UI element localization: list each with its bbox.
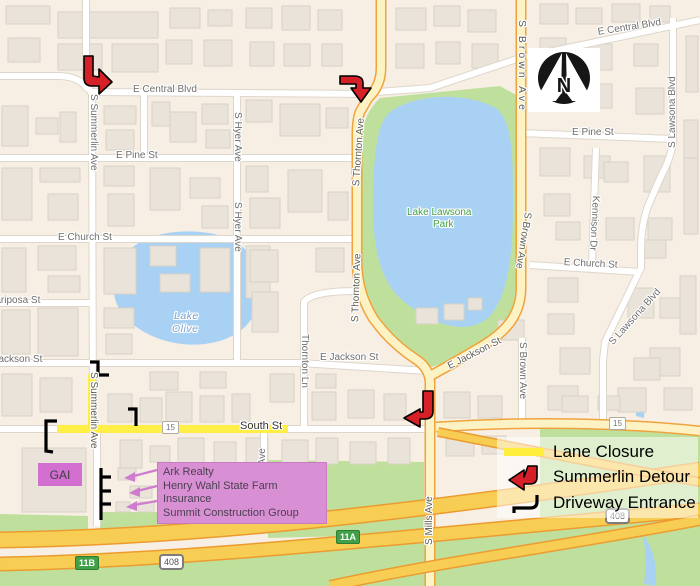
building (152, 102, 170, 126)
building (170, 8, 200, 28)
route-shield-15-west: 15 (162, 421, 179, 434)
compass-n-letter: N (557, 75, 571, 97)
building (348, 390, 374, 418)
building (38, 308, 78, 356)
building (106, 334, 132, 354)
building (478, 396, 502, 418)
street-label-s-lawsona-blvd-n: S Lawsona Blvd (667, 76, 679, 148)
building (396, 44, 424, 68)
building (250, 42, 274, 66)
detour-map-canvas: E Central Blvd E Central Blvd E Pine St … (0, 0, 700, 586)
building (316, 248, 344, 272)
callout-line-summit-construction: Summit Construction Group (163, 507, 321, 521)
legend-label-lane-closure: Lane Closure (553, 442, 654, 462)
building (60, 112, 76, 142)
building (38, 246, 76, 270)
building (200, 248, 230, 292)
building (40, 168, 80, 182)
building (166, 392, 192, 422)
building (318, 10, 342, 30)
building (200, 372, 226, 388)
exit-shield-11a: 11A (336, 530, 360, 544)
building (200, 396, 224, 422)
building (104, 106, 136, 124)
building (246, 8, 272, 28)
building (150, 446, 170, 462)
building (2, 106, 28, 146)
street-label-e-jackson-st-mid: E Jackson St (320, 352, 378, 364)
building (270, 374, 294, 402)
building (634, 358, 660, 380)
building (206, 130, 230, 148)
lake-olive-label-line1: Lake (174, 310, 199, 322)
map-legend: Lane Closure Summerlin Detour Driveway E… (497, 437, 698, 518)
building (48, 276, 80, 292)
street-label-s-brown-ave-s: S Brown Ave (516, 342, 528, 399)
building (436, 42, 460, 64)
detour-arrow-icon (502, 464, 546, 491)
lane-closure-swatch-icon (502, 446, 546, 458)
building (282, 6, 310, 30)
lake-lawsona-park-label-line1: Lake Lawsona (407, 207, 472, 219)
building (104, 248, 136, 294)
building (556, 222, 580, 240)
legend-label-summerlin-detour: Summerlin Detour (553, 467, 690, 487)
building (40, 378, 72, 412)
building (232, 394, 250, 422)
building (170, 112, 196, 142)
building (252, 292, 278, 332)
street-label-s-mills-ave: S Mills Ave (424, 496, 436, 545)
street-label-s-brown-ave-n: S Brown Ave (516, 20, 528, 113)
building (416, 308, 438, 324)
building (434, 6, 460, 26)
street-label-s-thornton-ave-mid: S Thornton Ave (350, 253, 364, 322)
lake-olive-label-line2: Olive (172, 323, 198, 335)
building (2, 374, 32, 416)
building (684, 158, 698, 234)
legend-row-driveway-entrance: Driveway Entrance (497, 491, 698, 515)
building (250, 250, 278, 282)
building (612, 4, 640, 22)
street-label-s-summerlin-ave-s: S Summerlin Ave (87, 372, 99, 449)
building (104, 308, 134, 328)
building (548, 314, 574, 334)
lake-lawsona-park-label-line2: Park (433, 219, 454, 231)
business-callout-box: Ark Realty Henry Wahl State Farm Insuran… (157, 462, 327, 524)
building (328, 192, 348, 220)
building (560, 348, 590, 374)
legend-row-lane-closure: Lane Closure (497, 440, 698, 464)
building (208, 10, 232, 26)
building (636, 88, 664, 114)
building (562, 396, 588, 412)
street-label-s-hyer-ave-mid: S Hyer Ave (231, 202, 243, 252)
building (284, 44, 310, 66)
building (444, 392, 470, 418)
building (312, 392, 336, 420)
building (58, 12, 158, 38)
building (468, 298, 482, 310)
building (112, 44, 158, 72)
building (540, 4, 568, 24)
building (190, 178, 220, 198)
building (396, 8, 426, 30)
legend-label-driveway-entrance: Driveway Entrance (553, 493, 696, 513)
building (540, 148, 570, 176)
callout-line-ark-realty: Ark Realty (163, 466, 321, 480)
driveway-entrance-icon (502, 492, 546, 514)
building (160, 274, 190, 292)
building (202, 104, 228, 124)
building (322, 44, 342, 66)
building (150, 246, 176, 266)
building (106, 130, 134, 150)
building (468, 10, 496, 32)
building (202, 206, 228, 228)
street-label-thornton-ln: Thornton Ln (298, 334, 310, 388)
building (2, 248, 26, 292)
building (648, 218, 672, 240)
building (576, 8, 602, 24)
building (548, 278, 578, 302)
building (2, 168, 32, 220)
building (604, 162, 628, 182)
building (108, 194, 134, 226)
building (140, 398, 162, 422)
legend-row-summerlin-detour: Summerlin Detour (497, 465, 698, 489)
building (6, 6, 50, 24)
building (48, 194, 78, 220)
street-label-s-hyer-ave-n: S Hyer Ave (231, 112, 243, 162)
gai-building-label: GAI (38, 463, 82, 486)
building (350, 442, 376, 464)
street-label-e-pine-st-e: E Pine St (572, 127, 614, 139)
street-label-e-church-st-w: E Church St (58, 232, 112, 244)
building (544, 194, 570, 216)
building (246, 166, 268, 192)
building (686, 36, 698, 92)
building (246, 100, 272, 122)
building (384, 394, 406, 420)
building (644, 240, 666, 258)
street-label-e-central-blvd-w: E Central Blvd (133, 84, 197, 96)
building (618, 388, 646, 412)
exit-shield-11b: 11B (75, 556, 99, 570)
building (150, 168, 180, 210)
building (316, 374, 336, 388)
building (36, 118, 58, 134)
building (664, 388, 692, 410)
building (204, 40, 232, 66)
building (684, 120, 698, 164)
route-shield-15-east: 15 (609, 417, 626, 430)
building (150, 372, 178, 390)
building (166, 40, 192, 64)
street-label-e-pine-st-w: E Pine St (116, 150, 158, 162)
north-compass-icon: N (528, 48, 600, 112)
building (444, 304, 464, 320)
building (58, 44, 102, 70)
building (606, 218, 634, 240)
route-shield-408-west: 408 (159, 554, 184, 570)
building (104, 166, 134, 186)
building (8, 38, 40, 62)
street-label-mariposa-st: Mariposa St (0, 295, 40, 307)
building (316, 438, 338, 464)
building (288, 170, 322, 212)
building (388, 438, 410, 464)
building (280, 104, 320, 136)
street-label-south-st: South St (240, 420, 282, 432)
building (634, 44, 658, 66)
street-label-s-summerlin-ave-n: S Summerlin Ave (87, 94, 99, 171)
building (120, 440, 142, 468)
street-label-e-jackson-st-w: E Jackson St (0, 354, 42, 366)
building (2, 310, 30, 354)
building (250, 198, 280, 228)
building (326, 108, 348, 128)
building (680, 276, 696, 334)
callout-line-henry-wahl: Henry Wahl State Farm Insurance (163, 480, 321, 507)
